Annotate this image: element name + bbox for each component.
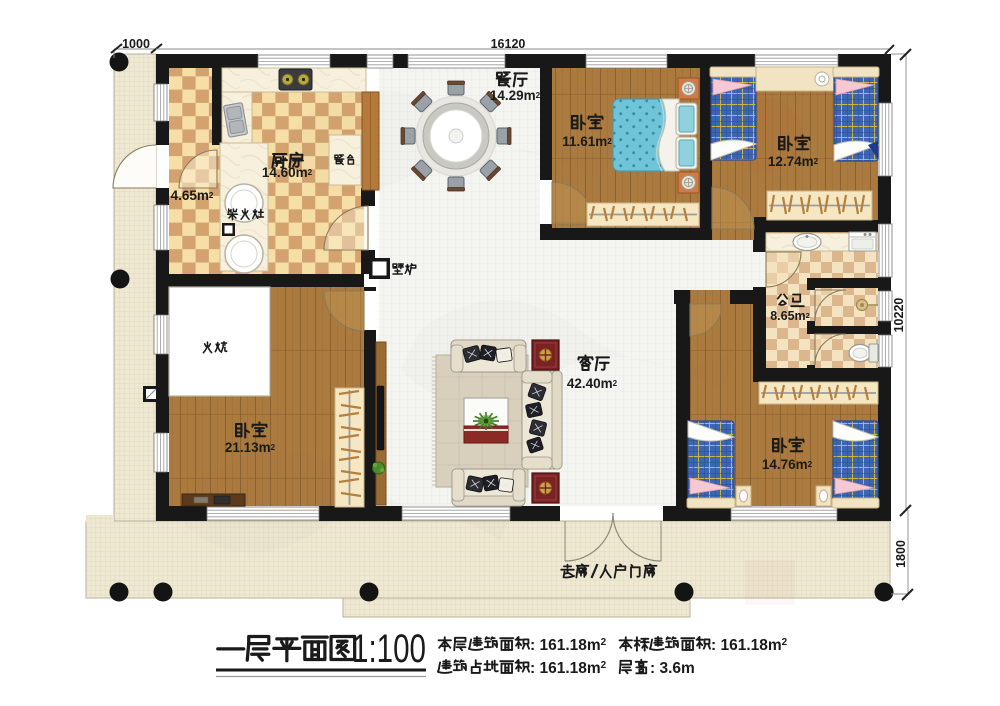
svg-text:: 161.18m2: : 161.18m2 <box>530 660 607 677</box>
svg-text:: 3.6m: : 3.6m <box>650 660 695 677</box>
svg-text:1:100: 1:100 <box>352 627 426 671</box>
svg-text:42.40m2: 42.40m2 <box>567 376 618 391</box>
svg-text:14.29m2: 14.29m2 <box>490 88 541 103</box>
svg-text:: 161.18m2: : 161.18m2 <box>711 637 788 654</box>
svg-text:8.65m2: 8.65m2 <box>770 309 810 323</box>
svg-text:12.74m2: 12.74m2 <box>768 154 819 169</box>
svg-text:4.65m2: 4.65m2 <box>171 188 214 203</box>
svg-text:: 161.18m2: : 161.18m2 <box>530 637 607 654</box>
svg-text:1800: 1800 <box>894 540 908 568</box>
svg-text:16120: 16120 <box>491 37 526 51</box>
svg-text:10220: 10220 <box>892 298 906 333</box>
svg-text:14.60m2: 14.60m2 <box>262 165 313 180</box>
svg-text:21.13m2: 21.13m2 <box>225 440 276 455</box>
svg-text:1000: 1000 <box>122 37 150 51</box>
svg-text:14.76m2: 14.76m2 <box>762 457 813 472</box>
svg-text:11.61m2: 11.61m2 <box>562 134 612 149</box>
